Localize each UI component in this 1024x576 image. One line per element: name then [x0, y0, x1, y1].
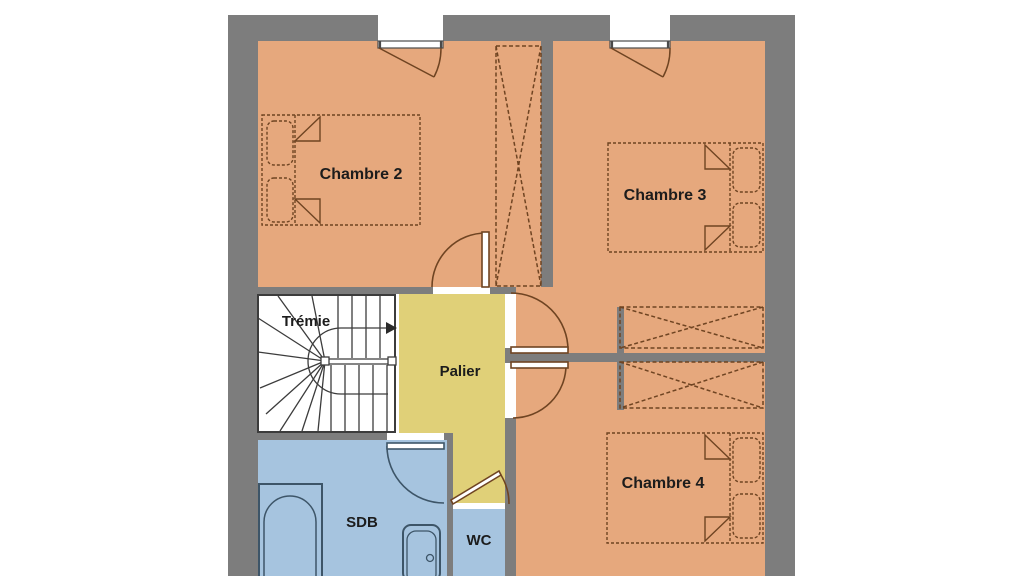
window-opening-chambre3: [610, 15, 670, 41]
label-wc: WC: [467, 532, 492, 549]
wall-top: [228, 15, 795, 41]
door-opening-chambre4: [505, 363, 516, 418]
floor-plan: Chambre 2 Chambre 3 Chambre 4 Trémie Pal…: [0, 0, 1024, 576]
label-sdb: SDB: [346, 514, 378, 531]
label-tremie: Trémie: [282, 313, 330, 330]
wall-chambre2-chambre3: [541, 41, 553, 287]
wall-chambre2-south-a: [258, 287, 433, 294]
wall-left: [228, 15, 258, 576]
wall-sdb-east: [447, 433, 453, 576]
room-sdb-floor: [258, 440, 447, 576]
stair-handrail-cap-right: [388, 357, 396, 365]
door-opening-sdb: [387, 433, 444, 440]
wall-chambre3-chambre4: [505, 353, 765, 362]
label-palier: Palier: [440, 363, 481, 380]
label-chambre4: Chambre 4: [622, 475, 705, 492]
wall-right: [765, 15, 795, 576]
door-opening-chambre2: [433, 287, 490, 294]
window-opening-chambre2: [378, 15, 443, 41]
room-palier-corridor: [453, 433, 505, 503]
wall-sdb-north-a: [258, 433, 387, 440]
label-chambre2: Chambre 2: [320, 166, 403, 183]
door-opening-chambre3: [505, 294, 516, 348]
wc-door-threshold: [453, 503, 505, 509]
stair-handrail-cap-left: [321, 357, 329, 365]
label-chambre3: Chambre 3: [624, 187, 707, 204]
wall-palier-chambre4: [505, 418, 516, 576]
